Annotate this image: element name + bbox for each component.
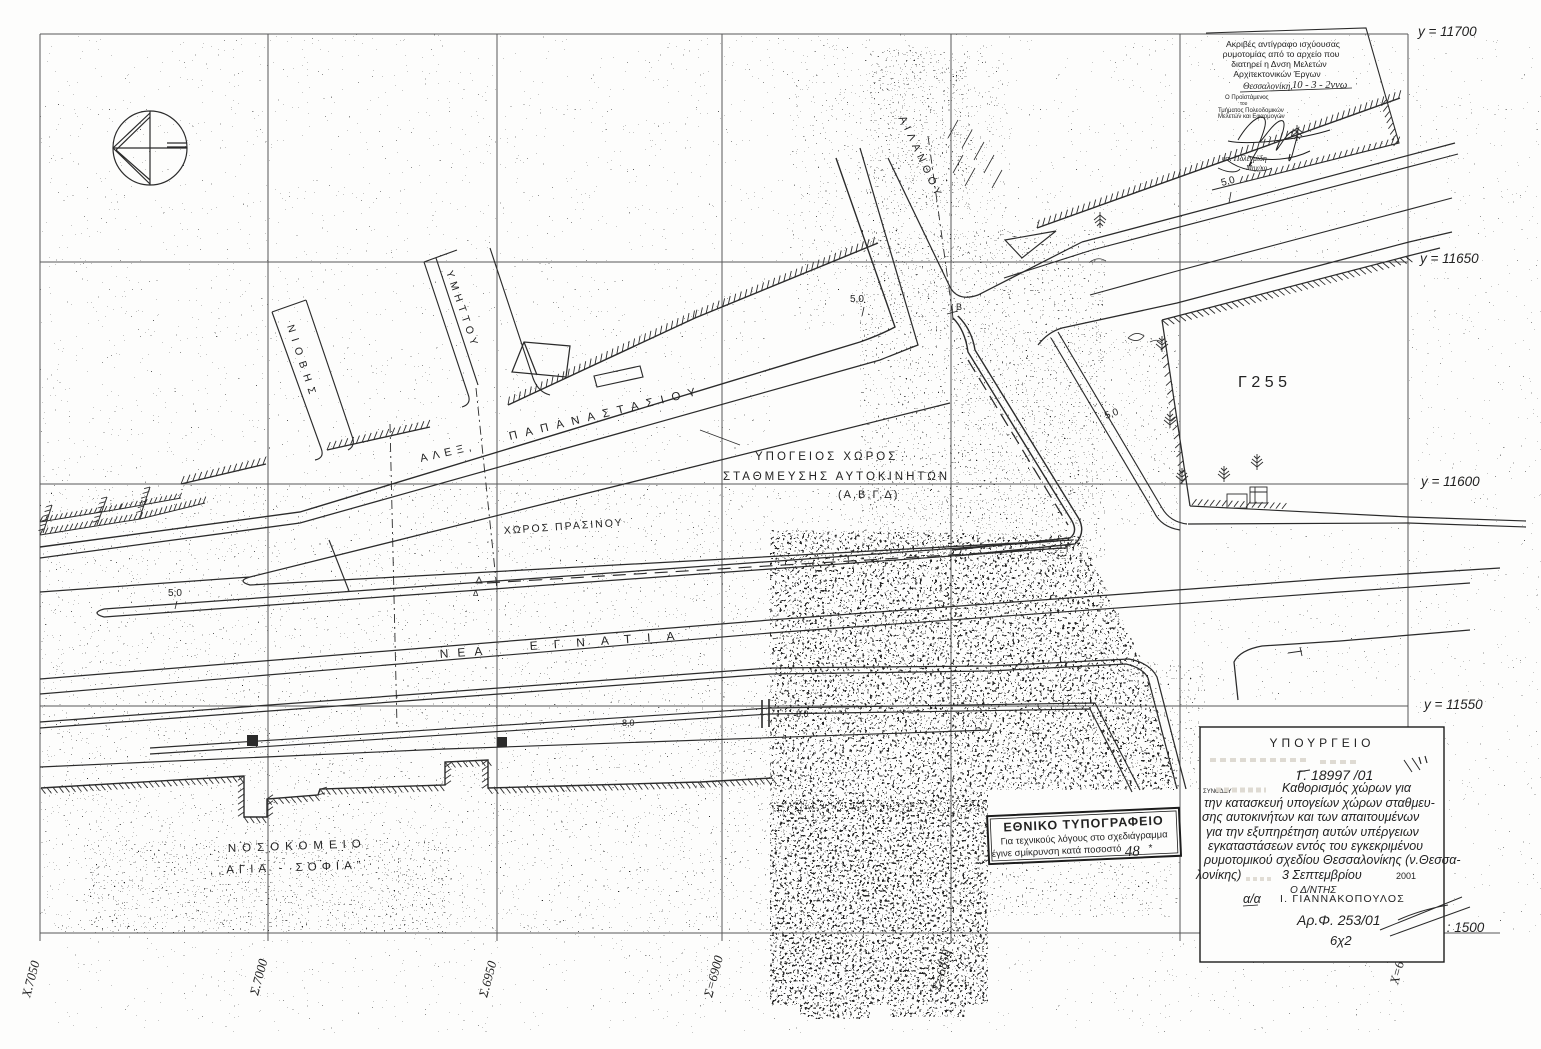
svg-text:B: B bbox=[956, 302, 962, 312]
svg-text:σης αυτοκινήτων και των απαιτο: σης αυτοκινήτων και των απαιτουμένων bbox=[1202, 810, 1420, 824]
svg-text:Αρχιτεκτονικών Έργων: Αρχιτεκτονικών Έργων bbox=[1233, 69, 1320, 79]
svg-text:Θεσσαλονίκη,: Θεσσαλονίκη, bbox=[1243, 81, 1293, 91]
svg-text:ρυμοτομίας από το αρχείο π: ρυμοτομίας από το αρχείο που bbox=[1223, 49, 1340, 59]
svg-text:Δ: Δ bbox=[473, 589, 479, 598]
svg-text:Τμήματος Πολεοδομικών: Τμήματος Πολεοδομικών bbox=[1218, 107, 1284, 114]
svg-text:2001: 2001 bbox=[1396, 871, 1416, 881]
svg-text:διατηρεί η Δνση Μελετών: διατηρεί η Δνση Μελετών bbox=[1231, 59, 1326, 69]
svg-text:*: * bbox=[1148, 843, 1152, 854]
svg-text:Μελετών και Εφαρμογών: Μελετών και Εφαρμογών bbox=[1218, 114, 1285, 120]
svg-text:ΥΠΟΥΡΓΕΙΟ: ΥΠΟΥΡΓΕΙΟ bbox=[1270, 736, 1375, 750]
svg-text:y = 11600: y = 11600 bbox=[1420, 474, 1480, 489]
svg-text:Ακριβές αντίγραφο ισχύουσας: Ακριβές αντίγραφο ισχύουσας bbox=[1226, 39, 1340, 49]
svg-text:Καθορισμός χώρων για: Καθορισμός χώρων για bbox=[1282, 781, 1412, 795]
svg-text:3 Σεπτεμβρίου: 3 Σεπτεμβρίου bbox=[1282, 868, 1362, 882]
svg-text:του: του bbox=[1240, 101, 1248, 107]
svg-text:Αρ.Φ. 253/01: Αρ.Φ. 253/01 bbox=[1296, 912, 1381, 928]
svg-text:(Α,Β,Γ,Δ): (Α,Β,Γ,Δ) bbox=[838, 489, 899, 501]
svg-text:5,0: 5,0 bbox=[168, 588, 182, 599]
svg-text:ΣΤΑΘΜΕΥΣΗΣ ΑΥΤΟΚΙΝΗΤΩΝ: ΣΤΑΘΜΕΥΣΗΣ ΑΥΤΟΚΙΝΗΤΩΝ bbox=[723, 471, 950, 483]
svg-text:ρυμοτομικού σχεδίου Θεσσαλονίκ: ρυμοτομικού σχεδίου Θεσσαλονίκης (ν.Θεσσ… bbox=[1203, 853, 1461, 867]
svg-text:6χ2: 6χ2 bbox=[1330, 933, 1352, 948]
svg-text:Ι. ΓΙΑΝΝΑΚΟΠΟΥΛΟΣ: Ι. ΓΙΑΝΝΑΚΟΠΟΥΛΟΣ bbox=[1280, 893, 1405, 905]
svg-text:48: 48 bbox=[1124, 844, 1140, 861]
svg-text:8,0: 8,0 bbox=[796, 709, 809, 719]
svg-text:λονίκης): λονίκης) bbox=[1195, 868, 1241, 882]
svg-text:Γ255: Γ255 bbox=[1238, 374, 1292, 391]
svg-text:Ο Προϊστάμενος: Ο Προϊστάμενος bbox=[1225, 94, 1269, 101]
svg-text:ΥΠΟΓΕΙΟΣ ΧΩΡΟΣ: ΥΠΟΓΕΙΟΣ ΧΩΡΟΣ bbox=[755, 451, 898, 463]
svg-text:την κατασκευή υπογείων χώρων σ: την κατασκευή υπογείων χώρων σταθμευ- bbox=[1204, 796, 1435, 810]
svg-text:5,0: 5,0 bbox=[850, 294, 864, 305]
svg-text:υπ. Πδλεγμϊδη: υπ. Πδλεγμϊδη bbox=[1222, 154, 1267, 163]
svg-text:8,0: 8,0 bbox=[622, 718, 635, 728]
svg-text:y = 11650: y = 11650 bbox=[1419, 251, 1479, 266]
svg-text:y = 11550: y = 11550 bbox=[1423, 697, 1483, 712]
svg-text:για την εξυπηρέτηση αυτών υπέρ: για την εξυπηρέτηση αυτών υπέργειων bbox=[1206, 825, 1420, 839]
svg-text:- Μηχ/κο: - Μηχ/κο bbox=[1242, 164, 1268, 172]
svg-text:y = 11700: y = 11700 bbox=[1417, 24, 1477, 39]
svg-text:εγκαταστάσεων εντός του εγκεκρ: εγκαταστάσεων εντός του εγκεκριμένου bbox=[1208, 839, 1423, 853]
svg-text:α/α: α/α bbox=[1243, 892, 1262, 906]
